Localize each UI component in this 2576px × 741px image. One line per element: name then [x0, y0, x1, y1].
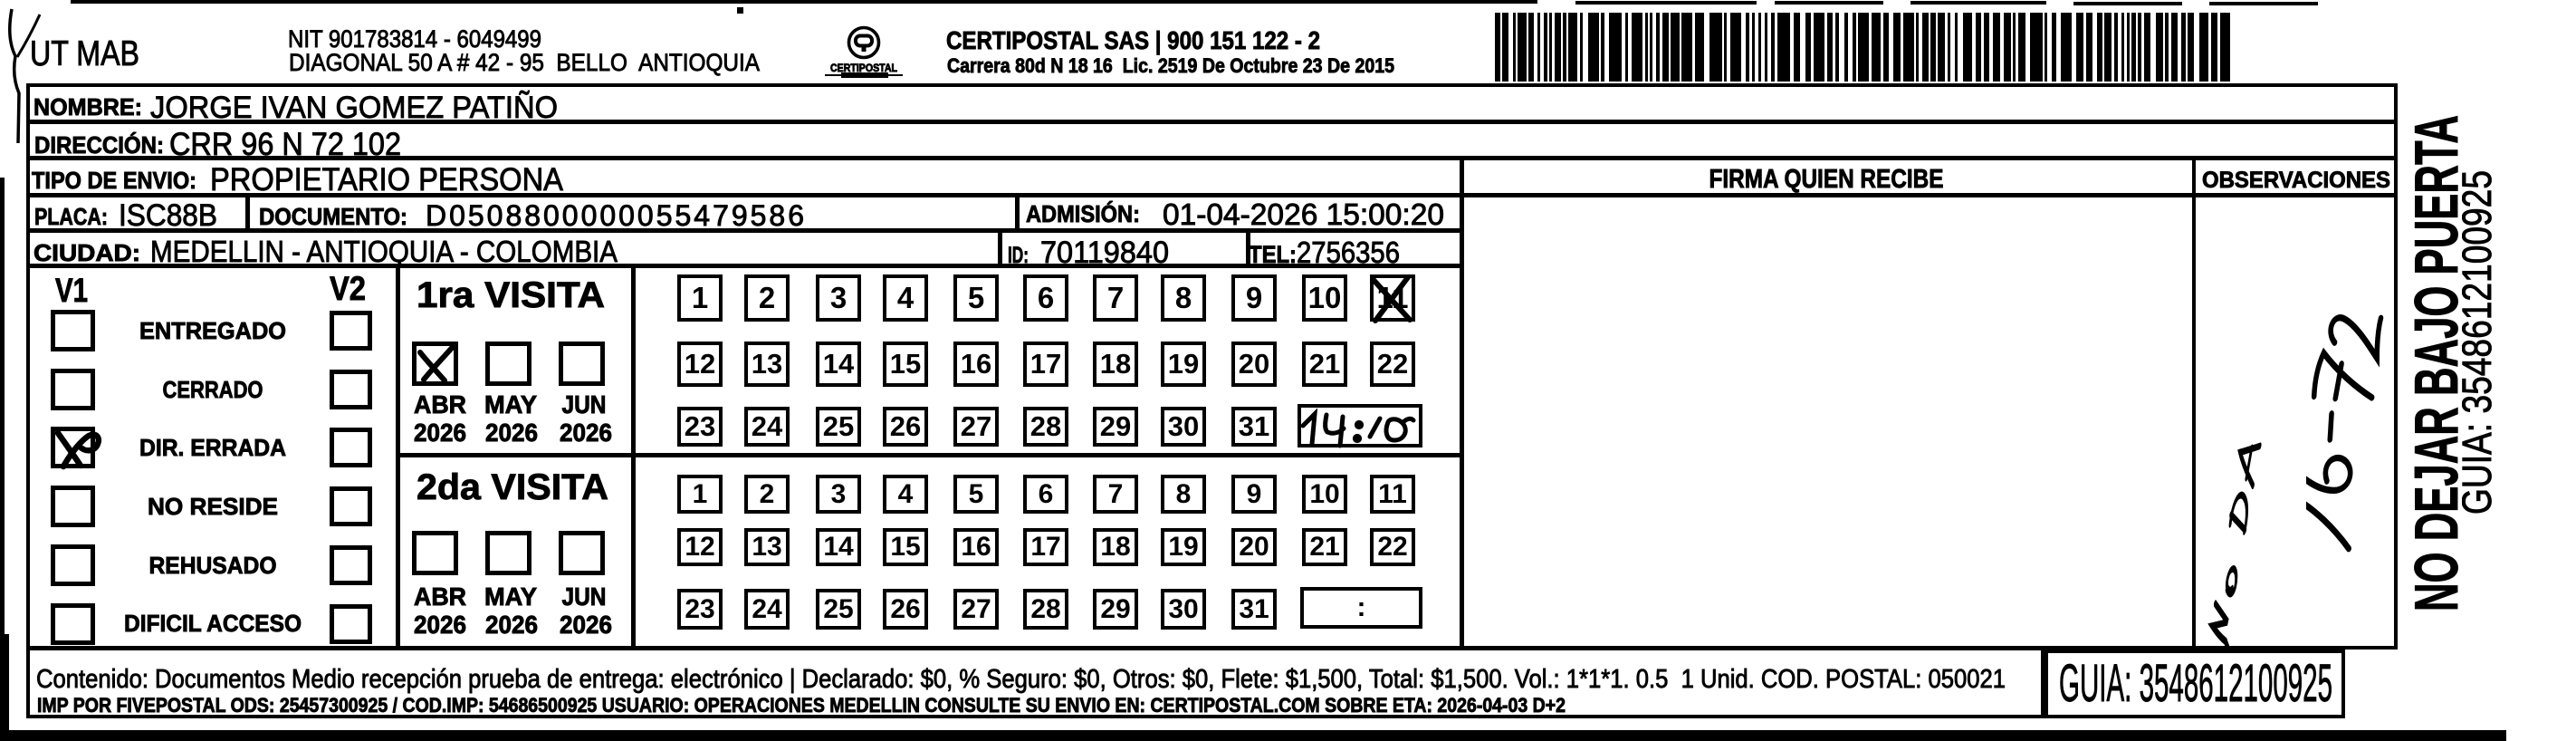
svg-text:2026: 2026 — [560, 611, 612, 639]
svg-text:1ra VISITA: 1ra VISITA — [417, 275, 605, 315]
svg-text:2026: 2026 — [414, 419, 466, 447]
svg-text:2026: 2026 — [414, 611, 466, 639]
svg-text:REHUSADO: REHUSADO — [149, 552, 277, 579]
svg-text:2da VISITA: 2da VISITA — [417, 467, 608, 507]
svg-text:NO RESIDE: NO RESIDE — [148, 493, 278, 520]
svg-text:DIFICIL ACCESO: DIFICIL ACCESO — [124, 610, 302, 637]
svg-text:2026: 2026 — [485, 611, 538, 639]
svg-text:JUN: JUN — [562, 390, 607, 419]
svg-text:V2: V2 — [330, 270, 366, 307]
svg-text:2026: 2026 — [560, 419, 612, 447]
svg-text:ENTREGADO: ENTREGADO — [139, 317, 286, 344]
svg-text:MAY: MAY — [484, 390, 537, 419]
svg-text:V1: V1 — [55, 272, 88, 309]
svg-text:ABR: ABR — [414, 582, 466, 611]
svg-text:JUN: JUN — [562, 582, 607, 611]
svg-text:MAY: MAY — [484, 582, 537, 611]
svg-text:2026: 2026 — [485, 419, 538, 447]
svg-text:DIR. ERRADA: DIR. ERRADA — [139, 434, 286, 461]
svg-text:CERRADO: CERRADO — [163, 376, 263, 403]
